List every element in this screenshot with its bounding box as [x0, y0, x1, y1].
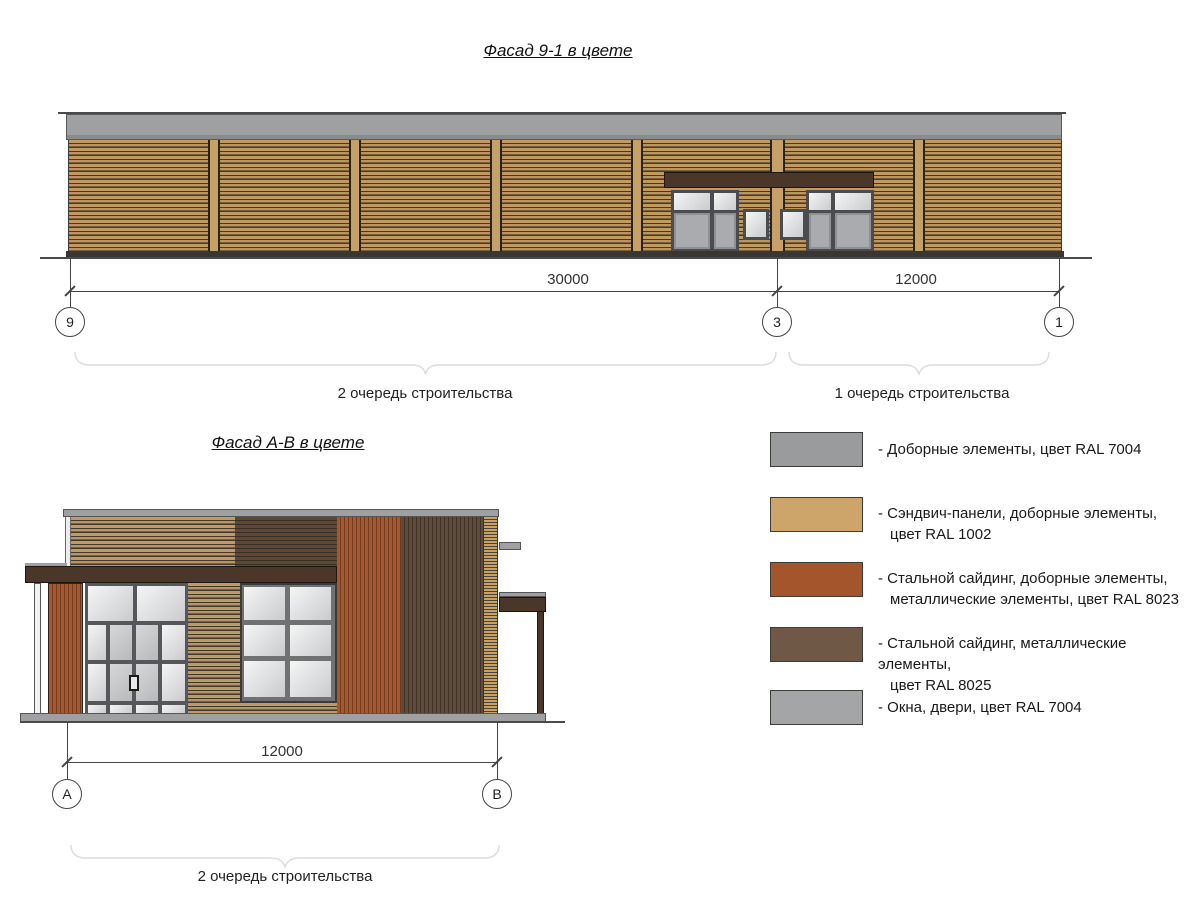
parapet-sand-siding	[71, 517, 235, 567]
legend-line: - Стальной сайдинг, металлические элемен…	[878, 633, 1200, 675]
extension-line-axis-3	[777, 258, 778, 307]
glass-pane	[290, 661, 331, 697]
panel-joint	[208, 140, 220, 253]
corner-sand-strip	[483, 517, 498, 714]
glass-pane	[244, 661, 285, 697]
glass-pane	[88, 586, 133, 621]
small-window	[780, 209, 806, 240]
legend-swatch-ral8023	[770, 562, 863, 597]
phase-brace-left	[74, 350, 777, 376]
sidelight-panel	[809, 213, 831, 249]
phase-brace-ab	[70, 843, 500, 869]
sidelight-transom-pane	[809, 193, 831, 210]
glass-pane	[162, 625, 185, 660]
panel-joint	[349, 140, 361, 253]
entrance-canopy	[664, 172, 874, 188]
extension-line-axis-b	[497, 722, 498, 779]
glass-pane	[244, 587, 285, 620]
legend-line: - Окна, двери, цвет RAL 7004	[878, 697, 1200, 718]
legend-item-label: - Сэндвич-панели, доборные элементы, цве…	[878, 503, 1200, 545]
gray-bracket	[499, 542, 521, 550]
axis-marker-a: А	[52, 779, 82, 809]
glass-pane	[88, 625, 106, 660]
legend-line: цвет RAL 8025	[878, 675, 1200, 696]
sidelight-transom-pane	[714, 193, 736, 210]
glass-pane	[290, 587, 331, 620]
legend-item-label: - Окна, двери, цвет RAL 7004	[878, 697, 1200, 718]
legend-item-label: - Доборные элементы, цвет RAL 7004	[878, 439, 1200, 460]
dimension-label-30000: 30000	[518, 271, 618, 288]
legend-item-label: - Стальной сайдинг, доборные элементы, м…	[878, 568, 1200, 610]
legend-line: - Доборные элементы, цвет RAL 7004	[878, 439, 1200, 460]
legend-item-label: - Стальной сайдинг, металлические элемен…	[878, 633, 1200, 696]
door-leaf	[674, 213, 710, 249]
glass-pane	[88, 664, 106, 701]
legend-swatch-ral7004	[770, 432, 863, 467]
extension-line-axis-a	[67, 722, 68, 779]
glass-pane	[783, 212, 803, 237]
glass-pane	[290, 625, 331, 656]
glass-pane	[746, 212, 766, 237]
parapet-gray-band	[66, 114, 1062, 140]
dimension-label-12000-ab: 12000	[232, 743, 332, 760]
legend-swatch-ral8025	[770, 627, 863, 662]
entrance-door-unit-left	[671, 190, 739, 252]
dimension-line	[70, 291, 1060, 292]
door-leaf	[835, 213, 871, 249]
axis-3-downpipe	[770, 140, 785, 172]
door-pane	[136, 664, 158, 701]
legend-line: - Стальной сайдинг, доборные элементы,	[878, 568, 1200, 589]
canopy-post-left	[34, 583, 41, 718]
axis-marker-3: 3	[762, 307, 792, 337]
roof-cap	[63, 509, 499, 517]
panel-joint	[490, 140, 502, 253]
storefront-glazing	[85, 583, 188, 717]
door-transom-pane	[674, 193, 710, 210]
glass-pane	[244, 625, 285, 656]
glass-pane	[137, 586, 185, 621]
door-handle-icon	[129, 675, 139, 691]
small-window	[743, 209, 769, 240]
phase-label-2: 2 очередь строительства	[275, 385, 575, 402]
phase-label-ab: 2 очередь строительства	[135, 868, 435, 885]
axis-marker-b: В	[482, 779, 512, 809]
large-window	[240, 583, 337, 703]
phase-label-1: 1 очередь строительства	[772, 385, 1072, 402]
entrance-door-unit-right	[806, 190, 874, 252]
axis-marker-1: 1	[1044, 307, 1074, 337]
legend-swatch-ral1002	[770, 497, 863, 532]
porch-canopy	[499, 597, 546, 612]
legend-swatch-windows-ral7004	[770, 690, 863, 725]
orange-vertical-siding	[337, 517, 401, 714]
dimension-line-ab	[67, 762, 497, 763]
legend-line: металлические элементы, цвет RAL 8023	[878, 589, 1200, 610]
legend-line: цвет RAL 1002	[878, 524, 1200, 545]
dimension-label-12000: 12000	[866, 271, 966, 288]
ground-line	[40, 257, 1092, 259]
panel-joint	[631, 140, 643, 253]
brown-vertical-siding	[401, 517, 483, 714]
panel-joint	[913, 140, 925, 253]
door-pane	[136, 625, 158, 660]
axis-marker-9: 9	[55, 307, 85, 337]
drawing-sheet: Фасад 9-1 в цвете 30000 12000 9 3 1	[0, 0, 1200, 900]
ground-line-ab	[20, 721, 565, 723]
facade-a-b-title: Фасад А-В в цвете	[138, 433, 438, 453]
legend-line: - Сэндвич-панели, доборные элементы,	[878, 503, 1200, 524]
sand-siding-mid	[188, 583, 240, 714]
phase-brace-right	[788, 350, 1050, 376]
door-transom-pane	[835, 193, 871, 210]
porch-post	[537, 612, 544, 718]
orange-corner-column	[48, 583, 83, 714]
glass-pane	[162, 664, 185, 701]
entrance-canopy-ab	[25, 566, 337, 583]
facade-9-1-title: Фасад 9-1 в цвете	[398, 41, 718, 61]
door-pane	[110, 625, 132, 660]
extension-line-axis-9	[70, 258, 71, 307]
sidelight-panel	[714, 213, 736, 249]
extension-line-axis-1	[1059, 258, 1060, 307]
